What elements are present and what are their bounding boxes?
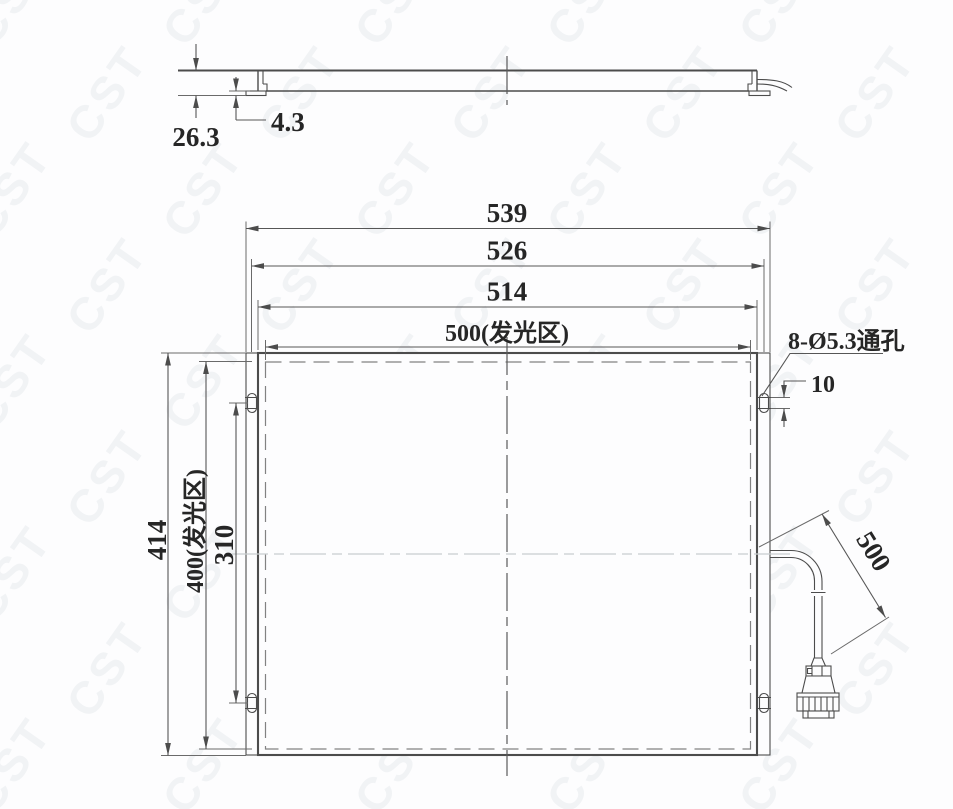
dim-label-slot-length: 10 bbox=[811, 372, 835, 398]
cable-lines bbox=[770, 551, 826, 659]
dim-label-step: 4.3 bbox=[271, 107, 305, 137]
dim-cable-length: 500 bbox=[759, 511, 897, 655]
dim-label-width-mount: 526 bbox=[487, 236, 528, 266]
dimension-drawing: 26.3 4.3 bbox=[0, 0, 953, 809]
dim-label-hole-spacing: 310 bbox=[209, 525, 239, 566]
technical-drawing-page: CSTCSTCSTCSTCSTCSTCSTCSTCSTCSTCSTCSTCSTC… bbox=[0, 0, 953, 809]
dim-label-cable-length: 500 bbox=[850, 526, 897, 576]
dim-hole-spacing: 310 bbox=[209, 403, 248, 703]
front-view: 539 526 514 500(发光区) bbox=[142, 198, 905, 776]
dim-label-height-overall: 414 bbox=[142, 520, 172, 561]
cable-assembly: 500 bbox=[759, 511, 897, 719]
dim-thickness-total: 26.3 bbox=[172, 44, 246, 152]
dim-label-width-luminous: 500(发光区) bbox=[445, 319, 569, 347]
side-left-mount-foot bbox=[246, 91, 266, 96]
dim-label-thickness: 26.3 bbox=[172, 122, 219, 152]
connector-neck bbox=[811, 658, 826, 666]
dim-label-height-luminous: 400(发光区) bbox=[181, 469, 209, 593]
hole-callout-label: 8-Ø5.3通孔 bbox=[788, 328, 905, 355]
dim-slot-length: 10 bbox=[771, 372, 835, 427]
connector-collar bbox=[806, 666, 831, 676]
connector-cone bbox=[802, 676, 835, 693]
dim-label-width-overall: 539 bbox=[487, 198, 528, 228]
cable-connector bbox=[797, 658, 839, 718]
dim-label-width-frame: 514 bbox=[487, 277, 528, 307]
side-view: 26.3 4.3 bbox=[172, 44, 792, 152]
side-right-mount-foot bbox=[749, 91, 770, 96]
side-cable-pigtail bbox=[757, 80, 792, 92]
